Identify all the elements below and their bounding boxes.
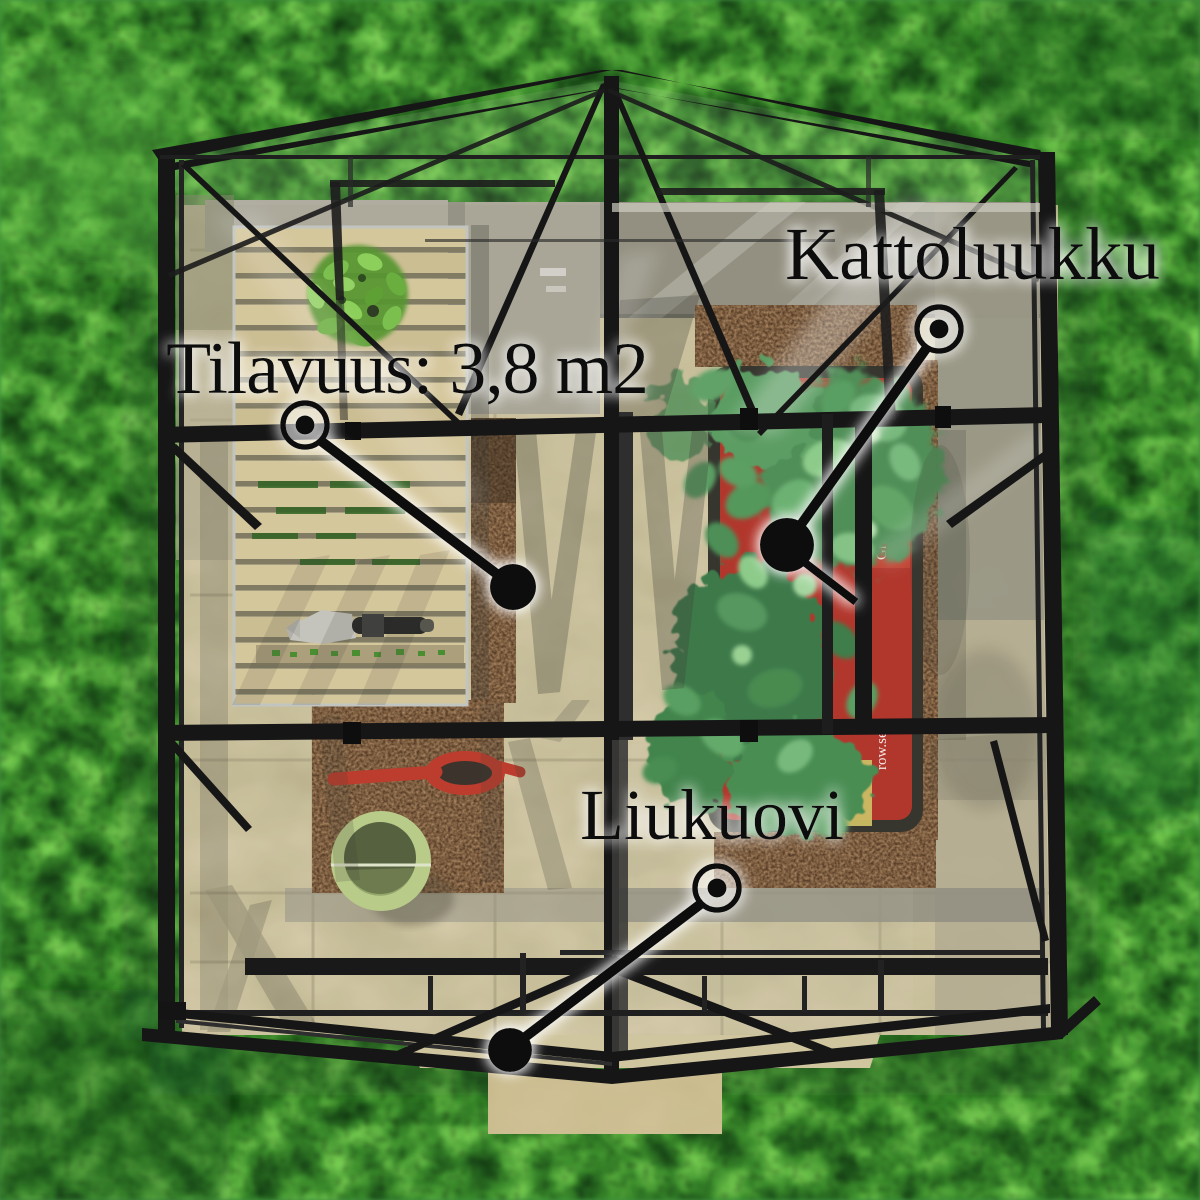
svg-text:Kattoluukku: Kattoluukku: [785, 213, 1160, 296]
svg-text:Liukuovi: Liukuovi: [580, 775, 844, 855]
svg-text:Tilavuus: 3,8 m2: Tilavuus: 3,8 m2: [166, 328, 648, 410]
